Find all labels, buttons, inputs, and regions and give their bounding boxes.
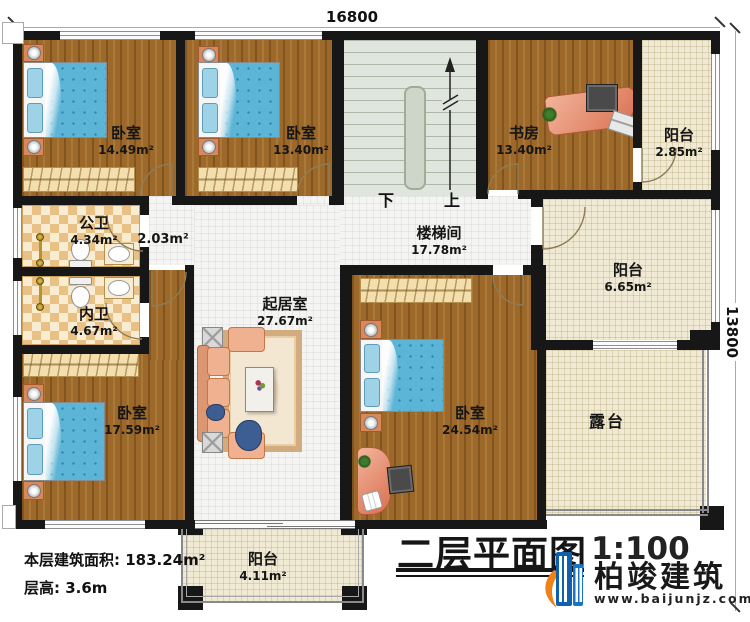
- floor-area-label: 本层建筑面积:: [24, 551, 120, 569]
- room-name: 内卫: [70, 305, 117, 324]
- parapet-line: [546, 509, 708, 511]
- bed-mattress: [221, 63, 279, 137]
- plant-icon: [542, 107, 557, 122]
- nightstand: [360, 320, 382, 339]
- floor-plan-canvas: 卧室 14.49m² 卧室 13.40m² 书房 13.40m² 阳台 2.85…: [0, 0, 750, 622]
- armchair: [228, 327, 265, 352]
- room-name: 书房: [496, 124, 552, 143]
- computer-monitor-icon: [586, 84, 618, 112]
- sink-counter: [104, 277, 134, 299]
- window: [45, 520, 145, 529]
- room-area: 14.49m²: [98, 143, 154, 158]
- room-label-balcony-bottom: 阳台 4.11m²: [239, 550, 286, 584]
- section-marker: [2, 505, 16, 529]
- room-label-living-room: 起居室 27.67m²: [257, 295, 313, 329]
- floor-terrace: [546, 350, 706, 515]
- dimension-top-value: 16800: [323, 8, 381, 26]
- room-name: 起居室: [257, 295, 313, 314]
- window: [711, 54, 720, 150]
- room-label-balcony-top-right: 阳台 2.85m²: [655, 126, 702, 160]
- closet: [360, 278, 472, 303]
- floor-area-value: 183.24m²: [125, 551, 205, 569]
- flower-vase-icon: [254, 378, 266, 392]
- room-name: 卧室: [98, 124, 154, 143]
- wall: [340, 265, 352, 529]
- towel-rail-knob: [36, 303, 44, 311]
- window: [195, 31, 322, 40]
- bed-mattress: [46, 403, 104, 480]
- towel-rail-knob: [36, 277, 44, 285]
- wall: [172, 196, 297, 205]
- dimension-tick: [714, 16, 725, 27]
- room-area: 17.59m²: [104, 423, 160, 438]
- floor-height-value: 3.6m: [65, 579, 107, 597]
- wall: [329, 196, 344, 205]
- sofa-cushion: [207, 347, 230, 376]
- room-label-bedroom-top-left: 卧室 14.49m²: [98, 124, 154, 158]
- bed-mattress: [46, 63, 106, 137]
- sofa-cushion: [207, 378, 230, 407]
- person-figure: [206, 404, 225, 421]
- room-label-balcony-right: 阳台 6.65m²: [604, 261, 651, 295]
- wall: [13, 267, 149, 276]
- room-label-bedroom-bottom-left: 卧室 17.59m²: [104, 404, 160, 438]
- closet: [198, 167, 298, 192]
- room-label-bedroom-top-mid: 卧室 13.40m²: [273, 124, 329, 158]
- room-name: 卧室: [442, 404, 498, 423]
- window: [593, 341, 677, 349]
- wall: [176, 40, 185, 196]
- wall: [633, 40, 642, 148]
- wall: [476, 40, 488, 199]
- stair-down-label: 下: [378, 187, 394, 211]
- dimension-right-value: 13800: [723, 303, 741, 361]
- nightstand: [23, 44, 44, 62]
- room-name: 阳台: [655, 126, 702, 145]
- title-underline: [396, 568, 584, 572]
- closet: [23, 167, 135, 192]
- room-area: 13.40m²: [273, 143, 329, 158]
- title-underline-2: [396, 575, 584, 577]
- room-area: 4.34m²: [70, 233, 117, 248]
- room-area: 2.85m²: [655, 145, 702, 160]
- floor-area-info: 本层建筑面积: 183.24m²: [24, 549, 205, 570]
- floor-height-info: 层高: 3.6m: [24, 577, 107, 598]
- section-marker: [2, 22, 24, 44]
- wall: [13, 345, 149, 354]
- wall: [340, 265, 493, 275]
- bed: [23, 62, 107, 138]
- toilet-tank: [69, 277, 92, 285]
- room-name: 卧室: [273, 124, 329, 143]
- stair-handrail: [404, 86, 426, 190]
- window: [711, 210, 720, 322]
- nightstand: [23, 481, 44, 500]
- wall: [518, 190, 720, 199]
- floor-bedroom-bottom-left-nook: [149, 270, 185, 360]
- window: [13, 397, 22, 481]
- room-name: 露台: [589, 412, 625, 432]
- wall: [332, 40, 344, 196]
- bed-pillows: [24, 403, 46, 480]
- bed-pillows: [361, 340, 383, 411]
- room-label-study: 书房 13.40m²: [496, 124, 552, 158]
- wall: [537, 275, 546, 529]
- wall: [185, 265, 194, 529]
- coffee-table: [245, 367, 274, 412]
- sink-icon: [108, 246, 130, 262]
- bed-mattress: [383, 340, 443, 411]
- room-area: 2.03m²: [137, 232, 188, 248]
- wall: [140, 196, 149, 215]
- wall: [531, 199, 543, 207]
- room-area: 6.65m²: [604, 280, 651, 295]
- room-label-bedroom-bottom-right: 卧室 24.54m²: [442, 404, 498, 438]
- room-area: 4.11m²: [239, 569, 286, 584]
- window: [13, 281, 22, 335]
- closet: [23, 352, 139, 377]
- nightstand: [23, 138, 44, 156]
- bed: [360, 339, 444, 412]
- bed-pillows: [24, 63, 46, 137]
- room-area: 27.67m²: [257, 314, 313, 329]
- room-label-public-bath: 公卫 4.34m²: [70, 214, 117, 248]
- room-area: 17.78m²: [411, 243, 467, 258]
- stair-up-label: 上: [444, 187, 460, 211]
- room-name: 公卫: [70, 214, 117, 233]
- person-figure: [235, 420, 262, 451]
- side-table: [202, 432, 223, 453]
- computer-monitor-icon: [387, 465, 415, 494]
- bed-pillows: [199, 63, 221, 137]
- room-name: 阳台: [604, 261, 651, 280]
- room-area: 4.67m²: [70, 324, 117, 339]
- bed: [23, 402, 105, 481]
- floor-balcony-top-right: [642, 40, 711, 190]
- bed: [198, 62, 280, 138]
- room-name: 阳台: [239, 550, 286, 569]
- window: [60, 31, 160, 40]
- wall: [543, 340, 593, 350]
- sink-icon: [108, 280, 130, 296]
- room-area: 13.40m²: [496, 143, 552, 158]
- room-label-hallway: 2.03m²: [137, 232, 188, 248]
- room-label-stairwell: 楼梯间 17.78m²: [411, 224, 467, 258]
- room-label-private-bath: 内卫 4.67m²: [70, 305, 117, 339]
- towel-rail-knob: [36, 259, 44, 267]
- towel-rail-knob: [36, 233, 44, 241]
- room-name: 卧室: [104, 404, 160, 423]
- sliding-door: [195, 520, 355, 529]
- nightstand: [198, 138, 219, 156]
- floor-height-label: 层高:: [24, 579, 60, 597]
- wall: [476, 190, 488, 199]
- parapet-line: [707, 350, 709, 513]
- brand-website: www.baijunjz.com: [594, 591, 750, 606]
- nightstand: [360, 413, 382, 432]
- dimension-line-top: [13, 27, 720, 28]
- window: [13, 208, 22, 258]
- nightstand: [23, 384, 44, 403]
- wall-column: [690, 330, 711, 350]
- parapet-line: [546, 514, 708, 516]
- plant-icon: [358, 455, 371, 468]
- wall: [13, 196, 140, 205]
- room-area: 24.54m²: [442, 423, 498, 438]
- parapet-line: [702, 350, 704, 513]
- brand-name: 柏竣建筑: [594, 552, 726, 596]
- room-label-terrace: 露台: [589, 412, 625, 432]
- room-name: 楼梯间: [411, 224, 467, 243]
